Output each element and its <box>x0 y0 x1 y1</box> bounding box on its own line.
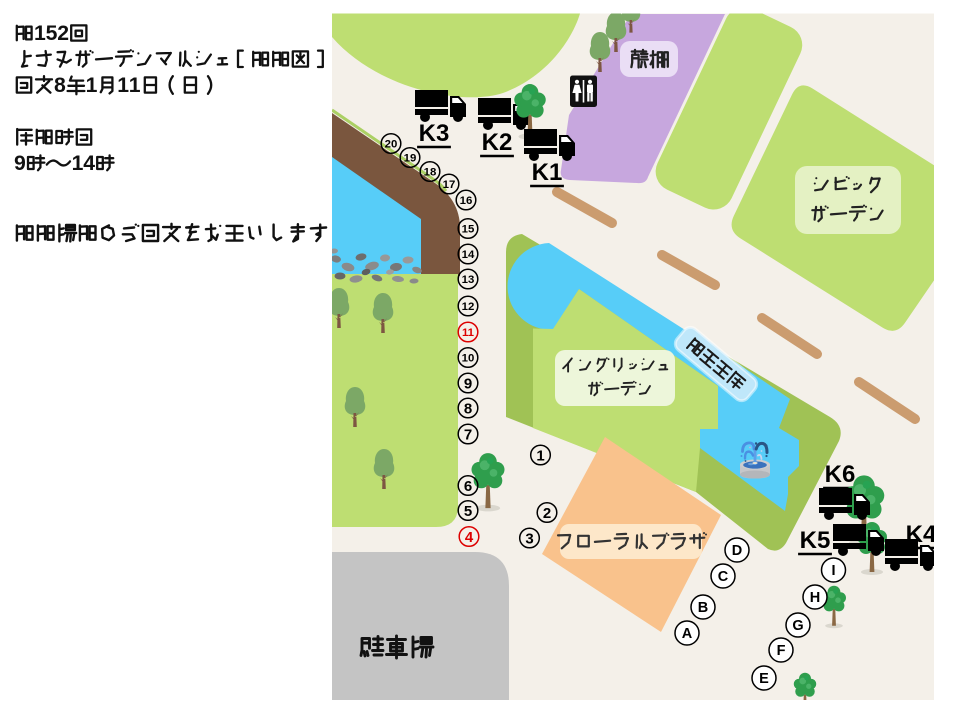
svg-text:14: 14 <box>462 249 475 261</box>
svg-text:B: B <box>698 600 708 616</box>
svg-text:4: 4 <box>83 152 95 175</box>
svg-text:D: D <box>732 543 742 559</box>
svg-text:2: 2 <box>543 505 551 522</box>
svg-text:1: 1 <box>86 74 98 97</box>
svg-text:K2: K2 <box>482 129 513 156</box>
svg-text:8: 8 <box>54 74 66 97</box>
svg-text:16: 16 <box>460 195 473 207</box>
svg-text:K1: K1 <box>532 159 563 186</box>
svg-text:4: 4 <box>465 529 474 546</box>
svg-text:3: 3 <box>525 530 533 547</box>
svg-text:1: 1 <box>536 447 544 464</box>
svg-text:A: A <box>682 626 693 642</box>
svg-text:20: 20 <box>385 139 398 151</box>
svg-text:1: 1 <box>129 74 141 97</box>
svg-text:19: 19 <box>404 153 417 165</box>
svg-text:1: 1 <box>34 22 46 45</box>
svg-text:18: 18 <box>424 167 437 179</box>
svg-text:11: 11 <box>462 327 475 339</box>
svg-text:6: 6 <box>464 478 472 495</box>
svg-text:E: E <box>759 671 769 687</box>
svg-text:K3: K3 <box>419 120 450 147</box>
svg-text:13: 13 <box>462 274 475 286</box>
svg-text:9: 9 <box>14 152 26 175</box>
svg-text:15: 15 <box>462 224 475 236</box>
svg-text:8: 8 <box>464 400 472 417</box>
svg-text:F: F <box>777 643 786 659</box>
svg-text:12: 12 <box>462 301 475 313</box>
svg-text:9: 9 <box>464 375 472 392</box>
svg-text:1: 1 <box>117 74 129 97</box>
svg-text:1: 1 <box>72 152 84 175</box>
svg-text:C: C <box>718 569 729 585</box>
svg-text:5: 5 <box>464 503 472 520</box>
svg-text:5: 5 <box>46 22 58 45</box>
svg-text:K6: K6 <box>825 461 856 488</box>
svg-text:H: H <box>810 590 820 606</box>
svg-text:10: 10 <box>462 353 475 365</box>
svg-text:2: 2 <box>57 22 69 45</box>
svg-text:G: G <box>792 618 803 634</box>
svg-text:K5: K5 <box>800 527 831 554</box>
svg-text:17: 17 <box>443 179 456 191</box>
svg-text:7: 7 <box>464 426 472 443</box>
svg-text:I: I <box>831 563 835 579</box>
